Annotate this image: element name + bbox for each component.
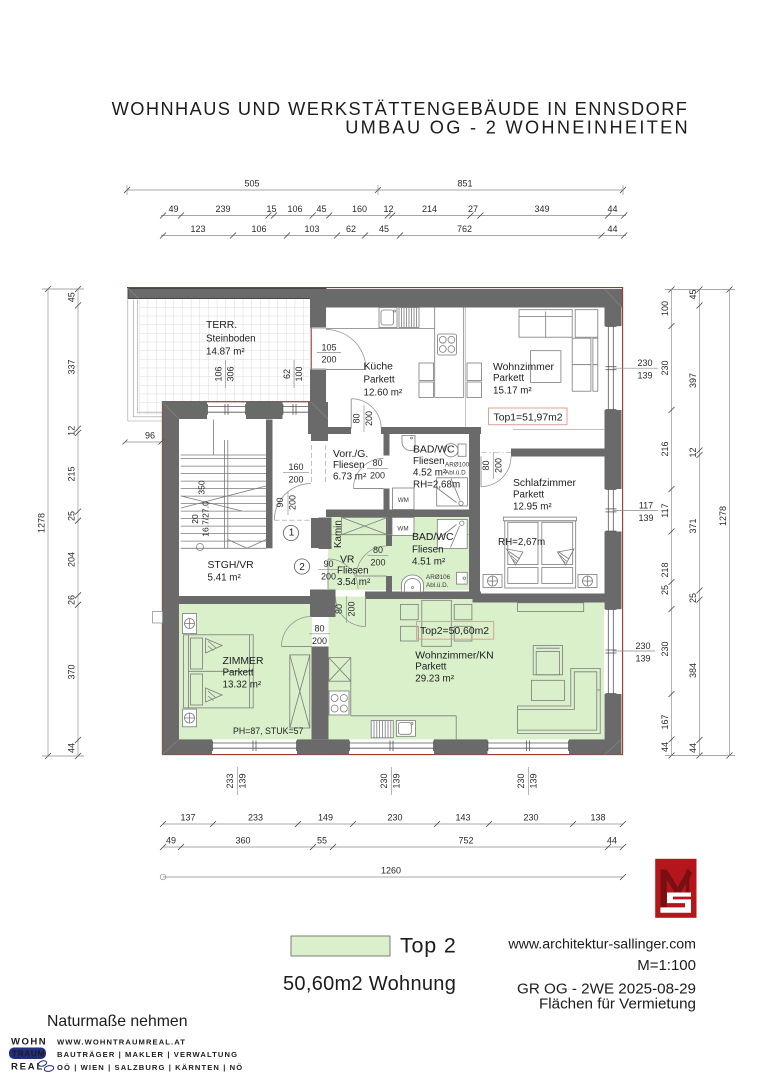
svg-text:RH=2,68m: RH=2,68m: [413, 480, 460, 491]
svg-text:16.7/27.0: 16.7/27.0: [201, 501, 211, 537]
svg-text:WOHNHAUS UND WERKSTÄTTENGEBÄUD: WOHNHAUS UND WERKSTÄTTENGEBÄUDE IN ENNSD…: [112, 99, 689, 119]
svg-text:ARØ106: ARØ106: [426, 574, 451, 581]
svg-text:397: 397: [688, 373, 698, 388]
svg-text:Top 2: Top 2: [400, 934, 457, 958]
svg-text:752: 752: [458, 836, 473, 846]
svg-text:139: 139: [392, 773, 402, 788]
svg-text:3.54 m²: 3.54 m²: [337, 577, 371, 588]
svg-text:Parkett: Parkett: [223, 668, 254, 679]
svg-text:WOHN: WOHN: [11, 1037, 47, 1048]
svg-text:44: 44: [607, 224, 617, 234]
svg-text:218: 218: [660, 562, 670, 577]
svg-text:Top1=51,97m2: Top1=51,97m2: [494, 413, 563, 424]
svg-text:12.95 m²: 12.95 m²: [513, 502, 552, 513]
svg-text:233: 233: [248, 813, 263, 823]
svg-text:139: 139: [637, 371, 652, 381]
svg-text:14.87 m²: 14.87 m²: [206, 347, 245, 358]
svg-text:230: 230: [660, 641, 670, 656]
svg-text:Wohnzimmer/KN: Wohnzimmer/KN: [415, 651, 493, 662]
svg-text:12: 12: [688, 447, 698, 457]
svg-text:851: 851: [457, 179, 472, 189]
svg-text:349: 349: [534, 204, 549, 214]
svg-text:13.32 m²: 13.32 m²: [223, 680, 262, 691]
svg-text:49: 49: [166, 836, 176, 846]
svg-text:200: 200: [288, 475, 303, 485]
svg-text:49: 49: [168, 204, 178, 214]
svg-text:90: 90: [323, 559, 333, 569]
svg-text:117: 117: [660, 503, 670, 517]
svg-text:230: 230: [523, 813, 538, 823]
svg-text:UMBAU OG - 2 WOHNEINHEITEN: UMBAU OG - 2 WOHNEINHEITEN: [345, 118, 690, 138]
svg-text:Schlafzimmer: Schlafzimmer: [513, 478, 576, 489]
svg-text:80: 80: [372, 458, 382, 468]
svg-text:Flächen für Vermietung: Flächen für Vermietung: [539, 996, 696, 1013]
svg-text:Parkett: Parkett: [493, 373, 524, 384]
svg-text:139: 139: [635, 653, 650, 663]
svg-text:45: 45: [688, 289, 698, 299]
svg-text:350: 350: [197, 480, 207, 494]
svg-text:215: 215: [67, 466, 77, 481]
svg-text:Parkett: Parkett: [415, 662, 446, 673]
svg-text:149: 149: [318, 813, 333, 823]
svg-text:200: 200: [321, 571, 336, 581]
svg-text:139: 139: [638, 513, 653, 523]
svg-text:Parkett: Parkett: [364, 375, 395, 386]
svg-text:62: 62: [346, 224, 356, 234]
svg-text:1278: 1278: [37, 513, 47, 533]
svg-text:Fliesen: Fliesen: [337, 566, 369, 577]
svg-text:Kamin: Kamin: [333, 520, 344, 548]
svg-text:230: 230: [660, 360, 670, 375]
svg-text:Fliesen: Fliesen: [413, 456, 445, 467]
svg-text:Abl.ü.D: Abl.ü.D: [445, 470, 466, 477]
svg-text:204: 204: [67, 552, 77, 567]
svg-text:100: 100: [294, 366, 304, 381]
svg-text:44: 44: [607, 836, 617, 846]
svg-text:29.23 m²: 29.23 m²: [415, 674, 454, 685]
svg-text:TRAUM: TRAUM: [12, 1049, 45, 1059]
svg-text:200: 200: [321, 355, 336, 365]
svg-text:45: 45: [316, 204, 326, 214]
svg-text:1278: 1278: [718, 506, 728, 526]
svg-text:Top2=50,60m2: Top2=50,60m2: [420, 626, 489, 637]
svg-text:Wohnzimmer: Wohnzimmer: [493, 362, 555, 373]
svg-text:1260: 1260: [381, 866, 401, 876]
svg-text:123: 123: [190, 224, 205, 234]
svg-text:55: 55: [317, 836, 327, 846]
svg-text:230: 230: [379, 773, 389, 788]
svg-text:50,60m2 Wohnung: 50,60m2 Wohnung: [283, 973, 456, 995]
svg-text:239: 239: [215, 204, 230, 214]
svg-text:25: 25: [688, 593, 698, 603]
svg-text:160: 160: [352, 204, 367, 214]
svg-text:384: 384: [688, 663, 698, 678]
svg-text:STGH/VR: STGH/VR: [208, 560, 255, 571]
svg-text:BAD/WC: BAD/WC: [413, 445, 455, 456]
svg-text:143: 143: [455, 813, 470, 823]
svg-text:M=1:100: M=1:100: [637, 957, 696, 974]
svg-text:www.architektur-sallinger.com: www.architektur-sallinger.com: [507, 937, 696, 953]
svg-text:762: 762: [457, 224, 472, 234]
svg-text:27: 27: [468, 204, 478, 214]
svg-text:233: 233: [225, 773, 235, 788]
svg-text:WWW.WOHNTRAUMREAL.AT: WWW.WOHNTRAUMREAL.AT: [57, 1038, 186, 1047]
svg-text:WM: WM: [397, 526, 408, 533]
svg-text:RH=2,67m: RH=2,67m: [498, 537, 545, 548]
svg-text:Fliesen: Fliesen: [412, 545, 444, 556]
svg-text:Fliesen: Fliesen: [333, 460, 365, 471]
svg-text:167: 167: [660, 714, 670, 729]
svg-text:ZIMMER: ZIMMER: [223, 656, 264, 667]
svg-text:2: 2: [299, 562, 305, 573]
svg-text:1: 1: [289, 528, 295, 539]
svg-text:200: 200: [288, 495, 298, 510]
svg-text:45: 45: [379, 224, 389, 234]
svg-text:26: 26: [67, 595, 77, 605]
svg-text:62: 62: [282, 369, 292, 379]
svg-text:230: 230: [387, 813, 402, 823]
svg-text:Abl.ü.D.: Abl.ü.D.: [426, 582, 449, 589]
svg-text:15: 15: [266, 204, 276, 214]
svg-text:505: 505: [244, 179, 259, 189]
svg-text:230: 230: [516, 773, 526, 788]
svg-text:TERR.: TERR.: [206, 320, 237, 331]
svg-text:160: 160: [288, 462, 303, 472]
svg-text:138: 138: [590, 813, 605, 823]
svg-text:Steinboden: Steinboden: [206, 334, 256, 345]
svg-text:Naturmaße nehmen: Naturmaße nehmen: [47, 1013, 187, 1030]
svg-text:6.73 m²: 6.73 m²: [333, 472, 367, 483]
svg-text:BAUTRÄGER | MAKLER | VERWALTUN: BAUTRÄGER | MAKLER | VERWALTUNG: [57, 1050, 238, 1059]
svg-text:200: 200: [364, 411, 374, 426]
svg-text:Küche: Küche: [364, 362, 394, 373]
svg-text:25: 25: [660, 585, 670, 595]
svg-text:100: 100: [660, 301, 670, 316]
svg-text:44: 44: [688, 743, 698, 753]
svg-text:137: 137: [180, 813, 195, 823]
svg-text:5.41 m²: 5.41 m²: [208, 573, 242, 584]
svg-text:200: 200: [370, 558, 385, 568]
svg-text:44: 44: [660, 742, 670, 752]
svg-text:20: 20: [190, 514, 200, 524]
svg-text:15.17 m²: 15.17 m²: [493, 386, 532, 397]
svg-text:103: 103: [304, 224, 319, 234]
svg-text:12: 12: [383, 204, 393, 214]
svg-text:OÖ | WIEN | SALZBURG | KÄRNTEN: OÖ | WIEN | SALZBURG | KÄRNTEN | NÖ: [57, 1063, 243, 1072]
svg-text:PH=87, STUK=57: PH=87, STUK=57: [233, 726, 304, 736]
svg-text:337: 337: [67, 359, 77, 374]
svg-text:80: 80: [314, 624, 324, 634]
svg-text:VR: VR: [340, 555, 355, 566]
svg-text:139: 139: [238, 773, 248, 788]
svg-text:Parkett: Parkett: [513, 490, 544, 501]
svg-text:117: 117: [639, 500, 653, 510]
svg-text:360: 360: [235, 836, 250, 846]
svg-text:80: 80: [352, 413, 362, 423]
svg-text:96: 96: [145, 431, 155, 441]
svg-text:4.52 m²: 4.52 m²: [413, 468, 447, 479]
svg-text:90: 90: [275, 497, 285, 507]
svg-text:44: 44: [67, 743, 77, 753]
svg-text:306: 306: [226, 366, 236, 381]
svg-text:370: 370: [67, 664, 77, 679]
svg-text:25: 25: [67, 511, 77, 521]
svg-text:216: 216: [660, 441, 670, 456]
svg-text:230: 230: [637, 358, 652, 368]
svg-text:200: 200: [494, 458, 504, 473]
svg-text:80: 80: [334, 604, 344, 614]
svg-text:106: 106: [251, 224, 266, 234]
svg-text:45: 45: [67, 292, 77, 302]
svg-text:200: 200: [347, 601, 357, 616]
svg-text:Vorr./G.: Vorr./G.: [333, 449, 368, 460]
svg-text:44: 44: [607, 204, 617, 214]
svg-text:200: 200: [312, 636, 327, 646]
svg-text:105: 105: [321, 343, 336, 353]
svg-text:230: 230: [635, 641, 650, 651]
svg-text:4.51 m²: 4.51 m²: [412, 557, 446, 568]
svg-text:106: 106: [214, 366, 224, 381]
svg-text:80: 80: [481, 460, 491, 470]
svg-text:WM: WM: [398, 497, 409, 504]
svg-text:200: 200: [370, 471, 385, 481]
svg-text:106: 106: [287, 204, 302, 214]
svg-text:12: 12: [67, 426, 77, 436]
svg-text:371: 371: [688, 518, 698, 533]
svg-text:80: 80: [373, 545, 383, 555]
svg-text:ARØ100: ARØ100: [445, 462, 470, 469]
svg-text:139: 139: [529, 773, 539, 788]
svg-text:214: 214: [422, 204, 437, 214]
svg-text:BAD/WC: BAD/WC: [412, 532, 454, 543]
svg-text:12.60 m²: 12.60 m²: [364, 388, 403, 399]
